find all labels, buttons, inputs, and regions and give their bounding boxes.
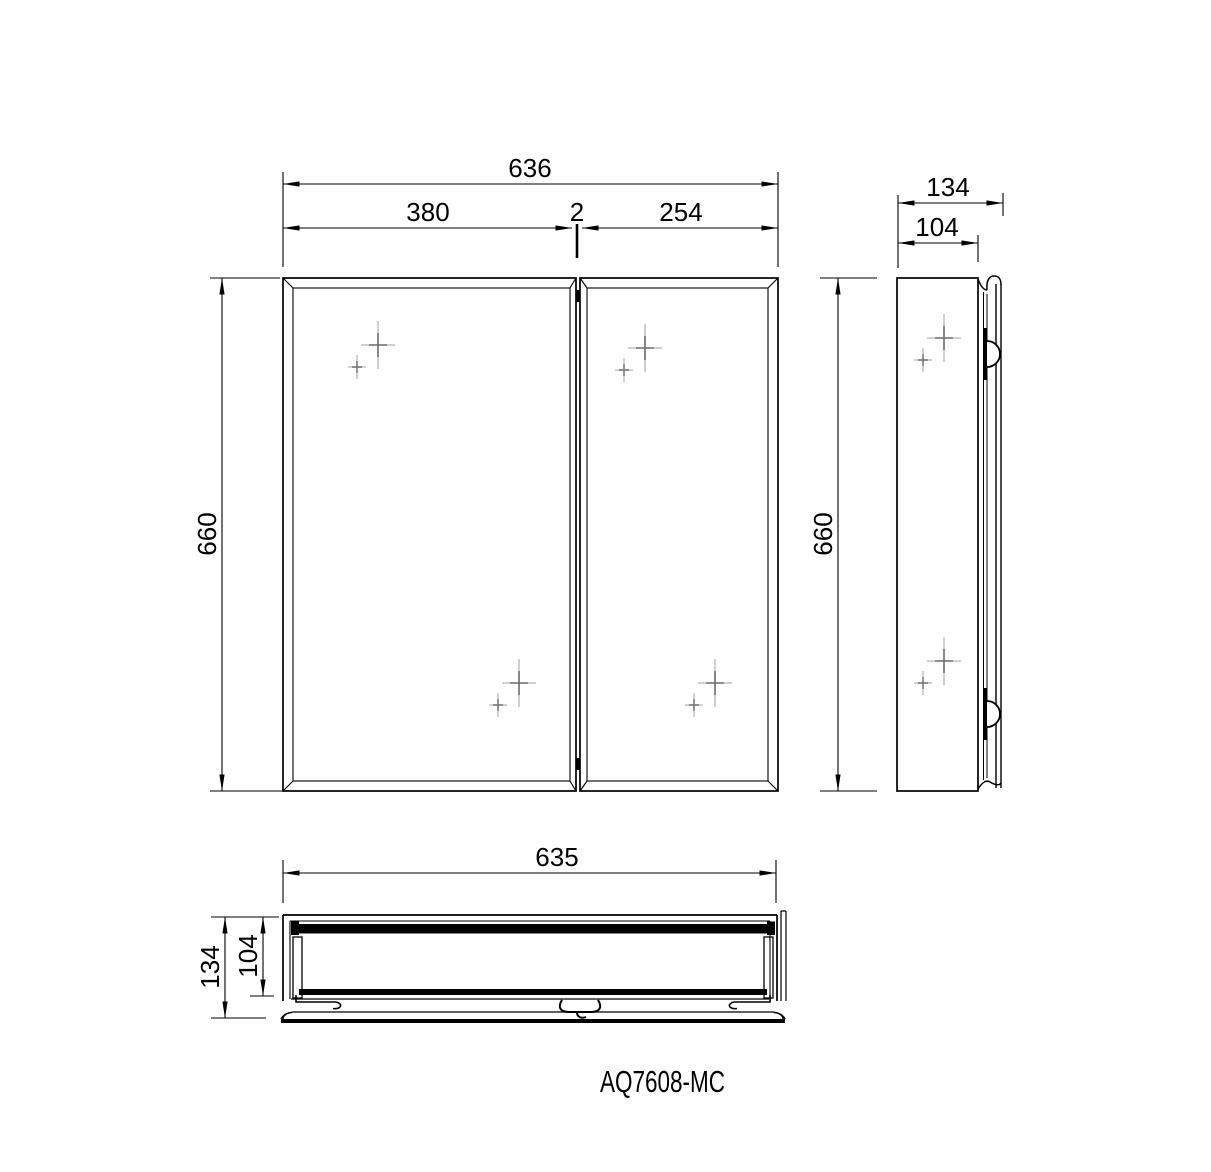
dimension-label: 380	[406, 197, 449, 227]
dimension-right-door-width: 254	[582, 197, 778, 228]
sparkle-icon	[914, 314, 961, 372]
mirror-cabinet-drawing: 636 380 2 254 660 660 134	[0, 0, 1211, 1172]
dimension-label: 635	[535, 842, 578, 872]
dimension-label: 254	[659, 197, 702, 227]
technical-drawing-page: 636 380 2 254 660 660 134	[0, 0, 1211, 1172]
dimension-label: 134	[926, 172, 969, 202]
dimension-front-height: 660	[192, 278, 305, 791]
sparkle-icon	[615, 324, 662, 382]
dimension-label: 660	[192, 512, 222, 555]
hinge-icon	[983, 328, 1000, 380]
door-gap-clip	[576, 758, 581, 770]
front-left-door	[283, 278, 576, 791]
model-label: AQ7608-MC	[600, 1064, 725, 1099]
hinge-icon	[983, 688, 1000, 740]
dimension-side-height: 660	[808, 278, 877, 791]
dimension-plan-width: 635	[283, 842, 776, 903]
door-gap-clip	[576, 290, 581, 302]
front-view	[283, 278, 778, 791]
door-clip-icon	[560, 1000, 600, 1018]
sparkle-icon	[914, 637, 961, 695]
dimension-label: 104	[915, 212, 958, 242]
dimension-plan-depth-body: 104	[233, 917, 274, 996]
dimension-label: 636	[508, 153, 551, 183]
dimension-left-door-width: 380	[283, 197, 572, 228]
front-right-door	[580, 278, 778, 791]
side-view	[897, 276, 1001, 791]
plan-view	[281, 911, 786, 1021]
dimension-label: 2	[570, 197, 584, 227]
dimension-total-width: 636	[283, 153, 778, 267]
dimension-label: 660	[808, 512, 838, 555]
dimension-label: 134	[195, 945, 225, 988]
door-foot-icon	[296, 995, 341, 1009]
sparkle-icon	[489, 659, 536, 717]
dimension-side-depth-body: 104	[898, 212, 978, 262]
sparkle-icon	[348, 321, 395, 379]
sparkle-icon	[685, 659, 732, 717]
dimension-label: 104	[233, 934, 263, 977]
